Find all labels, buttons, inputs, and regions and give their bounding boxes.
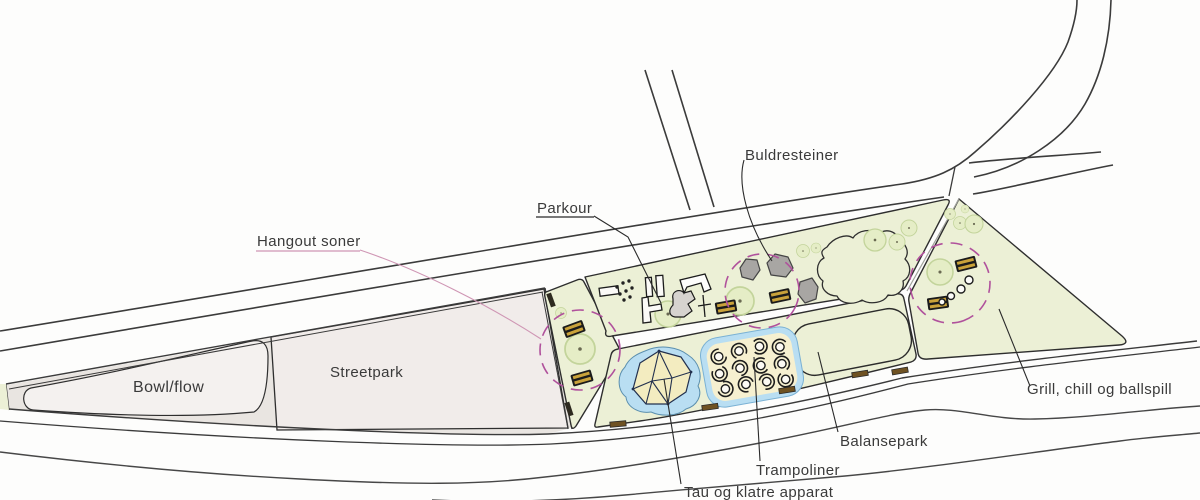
tree-icon bbox=[811, 243, 821, 253]
label-tau-og-klatre: Tau og klatre apparat bbox=[684, 484, 834, 500]
label-hangout-soner: Hangout soner bbox=[257, 233, 361, 250]
stone-icon bbox=[957, 285, 965, 293]
tree-icon bbox=[901, 220, 917, 236]
label-balansepark: Balansepark bbox=[840, 433, 928, 450]
label-bowl-flow: Bowl/flow bbox=[133, 379, 204, 396]
tree-icon bbox=[565, 334, 595, 364]
tree-icon bbox=[864, 229, 886, 251]
tree-icon bbox=[945, 209, 956, 220]
park-plan-sketch: Bowl/flow Streetpark Hangout soner Parko… bbox=[0, 0, 1200, 500]
tree-icon bbox=[965, 215, 983, 233]
plan-drawing: Bowl/flow Streetpark Hangout soner Parko… bbox=[0, 0, 1200, 500]
label-grill: Grill, chill og ballspill bbox=[1027, 381, 1172, 398]
label-trampoliner: Trampoliner bbox=[756, 462, 840, 479]
stone-icon bbox=[939, 299, 945, 305]
tree-icon bbox=[961, 205, 969, 213]
path-bench-icon bbox=[610, 421, 626, 428]
fork-road-line-b bbox=[672, 70, 714, 207]
stone-icon bbox=[948, 293, 955, 300]
label-parkour: Parkour bbox=[537, 200, 592, 217]
parkour-obstacle-icon bbox=[656, 275, 664, 296]
tree-icon bbox=[797, 245, 810, 258]
fork-road-line-a bbox=[645, 70, 690, 210]
skatepark-wedge bbox=[0, 288, 572, 434]
label-buldresteiner: Buldresteiner bbox=[745, 147, 839, 164]
east-road-line-b bbox=[973, 165, 1113, 194]
main-road-upper-line bbox=[0, 0, 1077, 331]
stone-icon bbox=[965, 276, 973, 284]
tree-icon bbox=[889, 234, 905, 250]
tree-icon bbox=[927, 259, 953, 285]
label-streetpark: Streetpark bbox=[330, 364, 403, 381]
path-bench-icon bbox=[892, 367, 909, 375]
junction-tick bbox=[949, 167, 955, 196]
north-road-inner-curve bbox=[974, 0, 1111, 177]
